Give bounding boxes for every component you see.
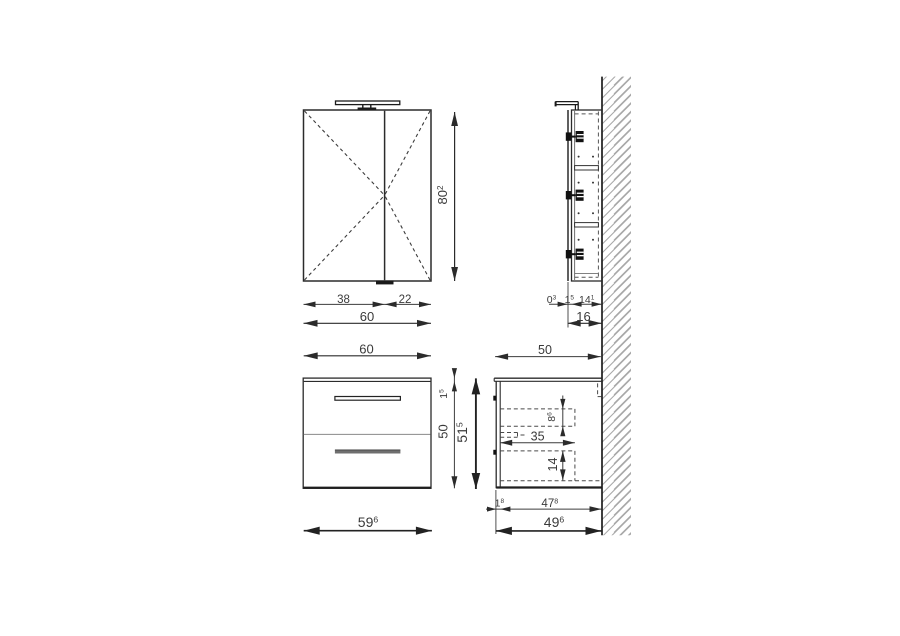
- svg-text:35: 35: [531, 429, 545, 443]
- svg-text:38: 38: [337, 294, 350, 306]
- svg-text:22: 22: [399, 294, 412, 306]
- svg-text:50: 50: [435, 424, 450, 438]
- svg-text:60: 60: [359, 341, 373, 356]
- svg-text:50: 50: [538, 343, 552, 357]
- svg-text:60: 60: [360, 309, 374, 324]
- svg-text:14: 14: [546, 458, 560, 472]
- svg-text:16: 16: [576, 309, 590, 324]
